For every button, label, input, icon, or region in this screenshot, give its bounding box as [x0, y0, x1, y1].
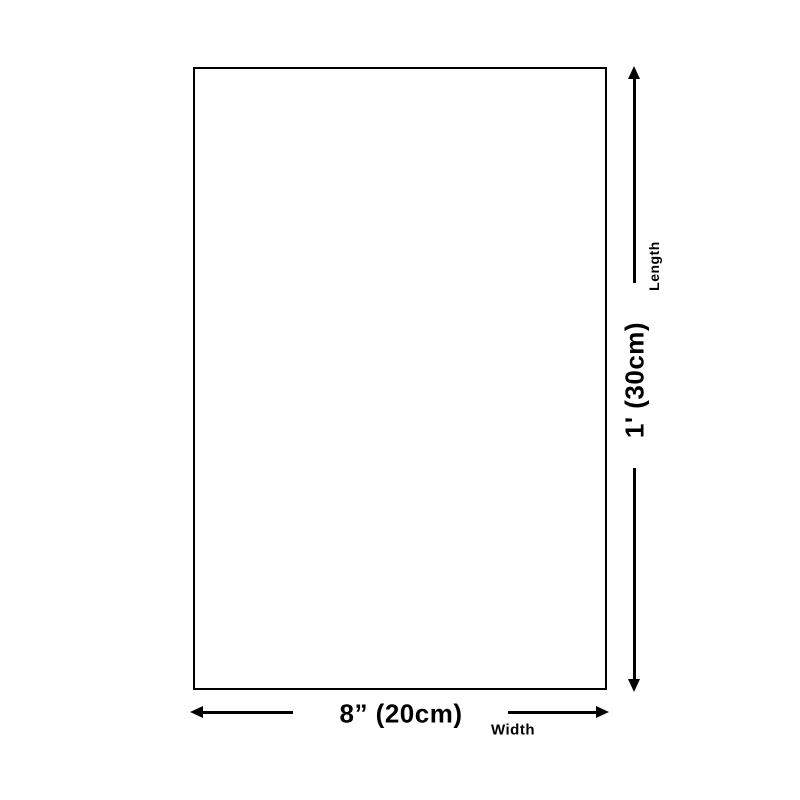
width-dimension-line-left — [201, 711, 293, 714]
length-dimension-value: 1' (30cm) — [620, 322, 651, 438]
width-dimension-line-right — [508, 711, 597, 714]
length-dimension-line-top — [633, 76, 636, 283]
product-dimension-diagram: Length 1' (30cm) 8” (20cm) Width — [0, 0, 800, 800]
length-axis-label: Length — [646, 241, 662, 291]
arrow-right-icon — [596, 706, 609, 718]
width-dimension-value: 8” (20cm) — [340, 699, 463, 730]
width-axis-label: Width — [491, 722, 535, 739]
length-dimension-line-bottom — [633, 468, 636, 681]
product-outline-rectangle — [193, 67, 607, 690]
arrow-down-icon — [628, 679, 640, 692]
